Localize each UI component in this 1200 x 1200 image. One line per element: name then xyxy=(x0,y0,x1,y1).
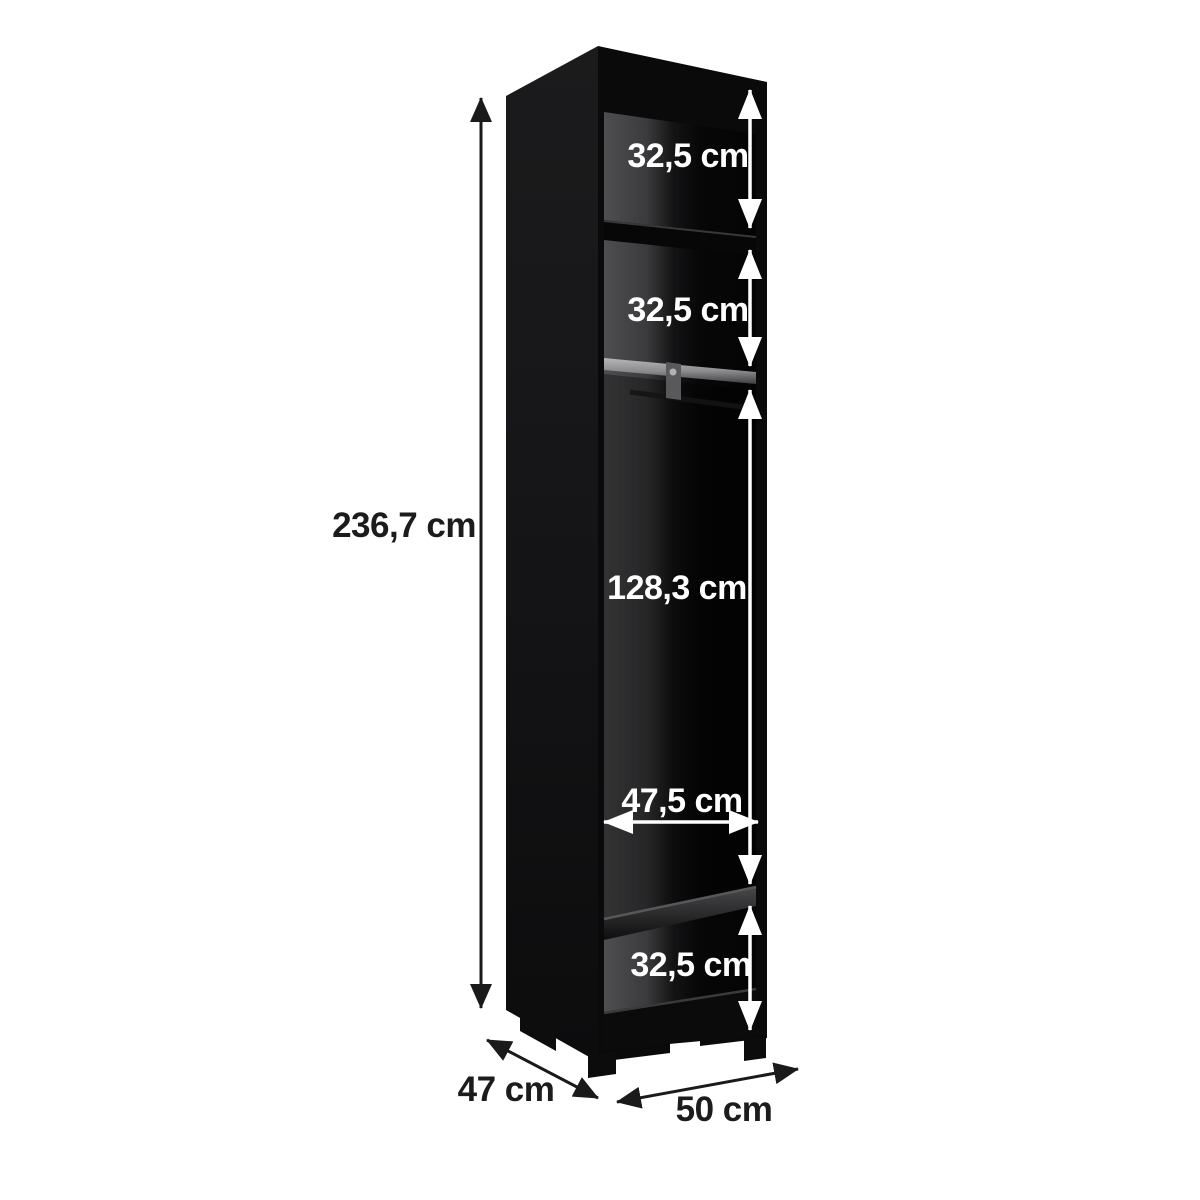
interior-width-label: 47,5 cm xyxy=(621,782,742,820)
hanging-section-label: 128,3 cm xyxy=(607,569,747,607)
depth-label: 47 cm xyxy=(458,1070,555,1109)
wardrobe-illustration xyxy=(506,46,767,1078)
hanging-section-shade xyxy=(604,374,756,918)
middle-section-label: 32,5 cm xyxy=(627,291,748,329)
wardrobe-dimension-diagram: 32,5 cm 32,5 cm 128,3 cm 47,5 cm 32,5 cm… xyxy=(0,0,1200,1200)
side-panel xyxy=(506,46,598,1062)
wardrobe-figure: 32,5 cm 32,5 cm 128,3 cm 47,5 cm 32,5 cm… xyxy=(0,0,1200,1200)
height-label: 236,7 cm xyxy=(332,506,476,545)
bottom-section-label: 32,5 cm xyxy=(630,946,751,984)
width-label: 50 cm xyxy=(676,1090,773,1129)
rail-screw xyxy=(670,369,677,376)
top-section-label: 32,5 cm xyxy=(627,137,748,175)
cabinet-foot-left xyxy=(588,1051,616,1078)
cabinet-foot-right xyxy=(744,1037,766,1061)
rail-bracket xyxy=(666,362,681,400)
